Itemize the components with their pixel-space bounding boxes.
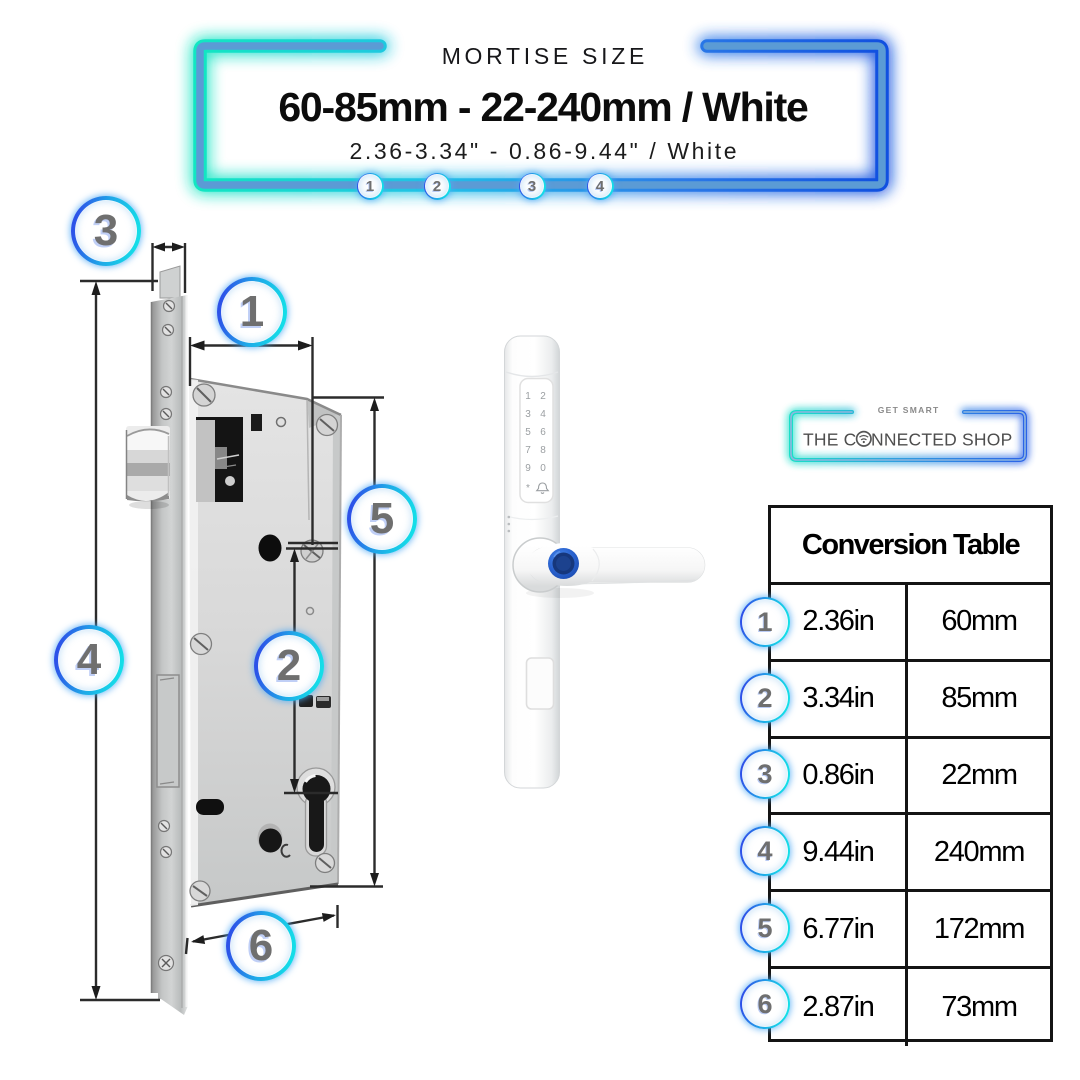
svg-text:*: * [526,483,530,494]
svg-text:8: 8 [540,445,546,456]
svg-text:9: 9 [525,463,531,474]
svg-text:2: 2 [540,391,546,402]
svg-text:THE C: THE C [803,430,857,450]
svg-text:3: 3 [525,409,531,420]
svg-text:0: 0 [540,463,546,474]
svg-text:4: 4 [540,409,546,420]
svg-text:NNECTED SHOP: NNECTED SHOP [871,430,1012,450]
svg-text:5: 5 [525,427,531,438]
svg-text:1: 1 [525,391,531,402]
svg-text:7: 7 [525,445,531,456]
svg-text:6: 6 [540,427,546,438]
